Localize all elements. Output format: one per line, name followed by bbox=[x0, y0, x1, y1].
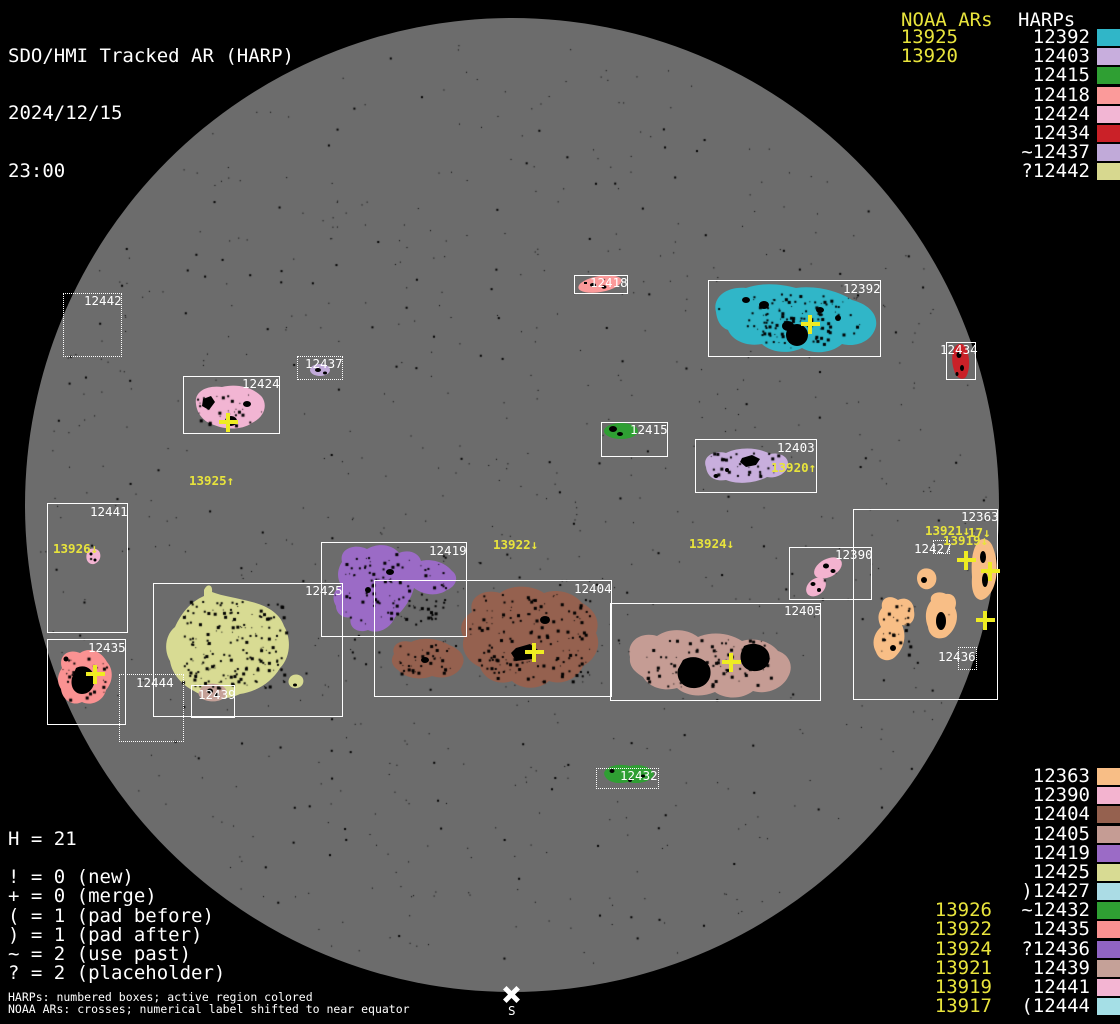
harp-box-label-12392: 12392 bbox=[843, 282, 881, 295]
harp-number: 12418 bbox=[1033, 86, 1090, 105]
color-swatch bbox=[1097, 979, 1120, 996]
legend-row-12390: 12390 bbox=[0, 786, 1120, 805]
harp-number: 12435 bbox=[1033, 920, 1090, 939]
harp-number: 12405 bbox=[1033, 825, 1090, 844]
harp-tracking-plot: SDO/HMI Tracked AR (HARP) 2024/12/15 23:… bbox=[0, 0, 1120, 1024]
legend-row-12392: 1392512392 bbox=[0, 28, 1120, 47]
color-swatch bbox=[1097, 106, 1120, 123]
harp-number: 12392 bbox=[1033, 28, 1090, 47]
harp-box-label-12434: 12434 bbox=[940, 343, 978, 356]
harp-number: ~12437 bbox=[1021, 143, 1090, 162]
noaa-cross bbox=[976, 611, 995, 630]
harp-number: 12439 bbox=[1033, 959, 1090, 978]
harp-number: 12419 bbox=[1033, 844, 1090, 863]
legend-row-12415: 12415 bbox=[0, 66, 1120, 85]
footer-line-2: NOAA ARs: crosses; numerical label shift… bbox=[8, 1003, 410, 1015]
noaa-shifted-label-13922: 13922↓ bbox=[493, 538, 538, 551]
harp-number: 12425 bbox=[1033, 863, 1090, 882]
harp-number: ~12432 bbox=[1021, 901, 1090, 920]
noaa-ar-number: 13921 bbox=[935, 959, 992, 978]
color-swatch bbox=[1097, 864, 1120, 881]
harp-number: )12427 bbox=[1021, 882, 1090, 901]
harp-box-label-12363: 12363 bbox=[961, 510, 999, 523]
harp-box-label-12403: 12403 bbox=[777, 441, 815, 454]
symbol-legend: ! = 0 (new)+ = 0 (merge)( = 1 (pad befor… bbox=[8, 868, 225, 984]
legend-row-12404: 12404 bbox=[0, 805, 1120, 824]
color-swatch bbox=[1097, 768, 1120, 785]
legend-row-12437: ~12437 bbox=[0, 143, 1120, 162]
harp-number: 12424 bbox=[1033, 105, 1090, 124]
noaa-cross bbox=[722, 653, 741, 672]
harp-number: ?12436 bbox=[1021, 940, 1090, 959]
noaa-cross bbox=[981, 562, 1000, 581]
harp-number: ?12442 bbox=[1021, 162, 1090, 181]
symbol-legend-line: ? = 2 (placeholder) bbox=[8, 964, 225, 983]
color-swatch bbox=[1097, 960, 1120, 977]
harp-box-label-12419: 12419 bbox=[429, 544, 467, 557]
color-swatch bbox=[1097, 902, 1120, 919]
harp-number: 12434 bbox=[1033, 124, 1090, 143]
legend-row-12405: 12405 bbox=[0, 825, 1120, 844]
legend-row-12418: 12418 bbox=[0, 86, 1120, 105]
harp-box-label-12405: 12405 bbox=[784, 604, 822, 617]
harp-number: 12415 bbox=[1033, 66, 1090, 85]
color-swatch bbox=[1097, 125, 1120, 142]
noaa-cross bbox=[525, 643, 544, 662]
harp-box-label-12439: 12439 bbox=[198, 688, 236, 701]
harp-box-label-12441: 12441 bbox=[90, 505, 128, 518]
harp-count: H = 21 bbox=[8, 830, 77, 849]
noaa-shifted-label-13920: 13920↑ bbox=[771, 461, 816, 474]
color-swatch bbox=[1097, 921, 1120, 938]
harp-number: 12404 bbox=[1033, 805, 1090, 824]
noaa-ar-number: 13920 bbox=[901, 47, 958, 66]
harp-number: 12441 bbox=[1033, 978, 1090, 997]
noaa-cross bbox=[957, 551, 976, 570]
harp-number: 12403 bbox=[1033, 47, 1090, 66]
noaa-shifted-label-13924: 13924↓ bbox=[689, 537, 734, 550]
noaa-ar-number: 13919 bbox=[935, 978, 992, 997]
harp-number: 12390 bbox=[1033, 786, 1090, 805]
noaa-ar-number: 13925 bbox=[901, 28, 958, 47]
legend-row-12434: 12434 bbox=[0, 124, 1120, 143]
symbol-legend-line: ( = 1 (pad before) bbox=[8, 907, 225, 926]
noaa-cross bbox=[86, 665, 105, 684]
harp-box-label-12436: 12436 bbox=[938, 650, 976, 663]
color-swatch bbox=[1097, 826, 1120, 843]
color-swatch bbox=[1097, 29, 1120, 46]
noaa-ar-number: 13924 bbox=[935, 940, 992, 959]
harp-box-label-12404: 12404 bbox=[574, 582, 612, 595]
annotation-layer: SDO/HMI Tracked AR (HARP) 2024/12/15 23:… bbox=[0, 0, 1120, 1024]
noaa-ar-number: 13926 bbox=[935, 901, 992, 920]
legend-row-12442: ?12442 bbox=[0, 162, 1120, 181]
harp-number: 12363 bbox=[1033, 767, 1090, 786]
color-swatch bbox=[1097, 941, 1120, 958]
harp-box-12404 bbox=[374, 580, 612, 697]
legend-row-12424: 12424 bbox=[0, 105, 1120, 124]
color-swatch bbox=[1097, 87, 1120, 104]
noaa-cross bbox=[801, 315, 820, 334]
color-swatch bbox=[1097, 787, 1120, 804]
color-swatch bbox=[1097, 48, 1120, 65]
legend-row-12363: 12363 bbox=[0, 767, 1120, 786]
color-swatch bbox=[1097, 998, 1120, 1015]
south-pole-label: S bbox=[508, 1004, 516, 1017]
legend-row-12419: 12419 bbox=[0, 844, 1120, 863]
harp-box-label-12432: 12432 bbox=[620, 769, 658, 782]
noaa-ar-number: 13917 bbox=[935, 997, 992, 1016]
color-swatch bbox=[1097, 163, 1120, 180]
noaa-shifted-label-13925: 13925↑ bbox=[189, 474, 234, 487]
color-swatch bbox=[1097, 67, 1120, 84]
noaa-cross bbox=[219, 413, 238, 432]
color-swatch bbox=[1097, 806, 1120, 823]
harp-box-label-12442: 12442 bbox=[84, 294, 122, 307]
color-swatch bbox=[1097, 883, 1120, 900]
noaa-shifted-label-13919: 13919↓ bbox=[943, 534, 988, 547]
harp-box-12441 bbox=[47, 503, 128, 633]
color-swatch bbox=[1097, 845, 1120, 862]
color-swatch bbox=[1097, 144, 1120, 161]
harp-box-12425 bbox=[153, 583, 343, 717]
noaa-ar-number: 13922 bbox=[935, 920, 992, 939]
harp-box-label-12435: 12435 bbox=[88, 641, 126, 654]
harp-box-label-12437: 12437 bbox=[305, 357, 343, 370]
south-pole-marker bbox=[502, 985, 521, 1004]
noaa-shifted-label-13926: 13926↓ bbox=[53, 542, 98, 555]
harp-box-label-12418: 12418 bbox=[590, 276, 628, 289]
harp-box-label-12424: 12424 bbox=[242, 377, 280, 390]
harp-box-label-12415: 12415 bbox=[630, 423, 668, 436]
legend-row-12403: 1392012403 bbox=[0, 47, 1120, 66]
symbol-legend-line: + = 0 (merge) bbox=[8, 887, 225, 906]
harp-number: (12444 bbox=[1021, 997, 1090, 1016]
